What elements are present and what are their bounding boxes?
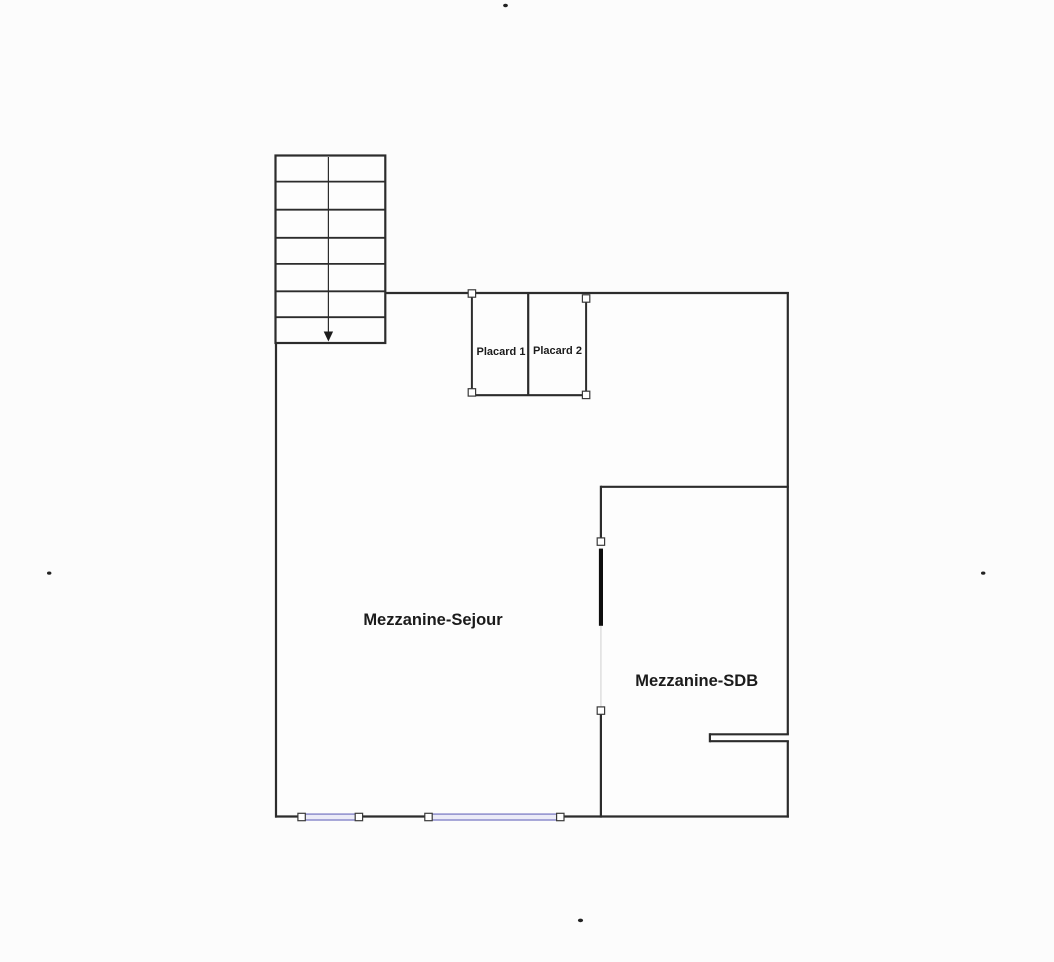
svg-text:Mezzanine-Sejour: Mezzanine-Sejour xyxy=(363,611,503,629)
svg-text:Mezzanine-SDB: Mezzanine-SDB xyxy=(635,672,758,690)
svg-text:Placard 2: Placard 2 xyxy=(533,345,582,357)
svg-text:Placard 1: Placard 1 xyxy=(477,346,526,358)
